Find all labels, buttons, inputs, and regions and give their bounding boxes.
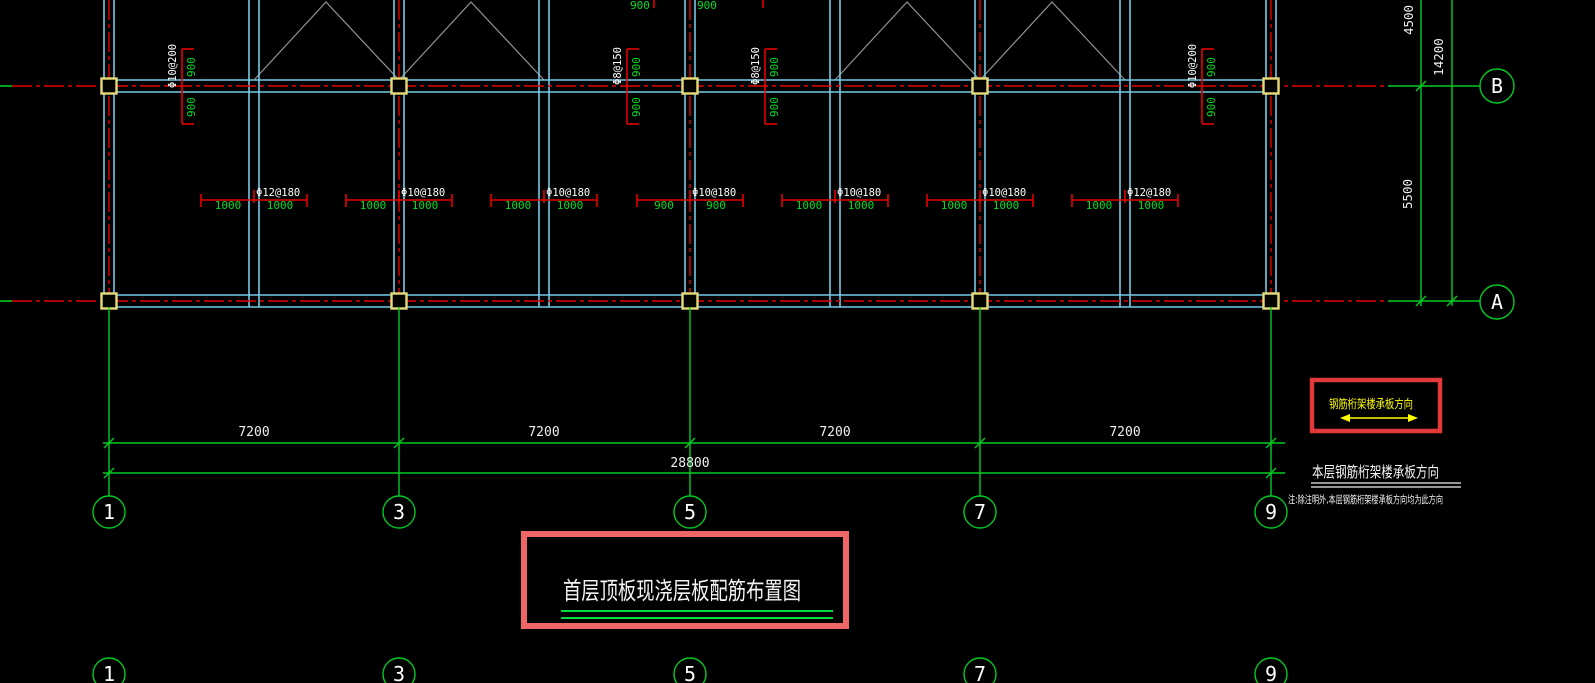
rebar-extent-right: 900 bbox=[697, 0, 717, 12]
grid-centerlines bbox=[0, 0, 1388, 312]
rebar-annotation-mid-3: Φ10@180 1000 1000 bbox=[491, 187, 597, 212]
rebar-annotation-mid-1: Φ12@180 1000 1000 bbox=[201, 187, 307, 212]
bay-dimension-label-4: 7200 bbox=[1109, 425, 1140, 440]
grid-bubbles-bottom: 1 3 5 7 9 bbox=[93, 496, 1287, 528]
total-dimension-label: 28800 bbox=[670, 456, 709, 471]
dimension-lines bbox=[103, 0, 1480, 496]
grid-bubble-partial-1: 1 bbox=[103, 662, 115, 683]
rebar-spacing-label: Φ12@180 bbox=[1127, 187, 1171, 199]
bay-dimension-label-1: 7200 bbox=[238, 425, 269, 440]
rebar-annotation-vertical-1: Φ10@200 900 900 bbox=[167, 44, 198, 124]
grid-bubble-5: 5 bbox=[684, 500, 696, 524]
rebar-extent-above: 900 bbox=[768, 57, 781, 77]
rebar-extent-below: 900 bbox=[630, 97, 643, 117]
drawing-title: 首层顶板现浇层板配筋布置图 bbox=[563, 577, 801, 605]
rebar-extent-left: 1000 bbox=[215, 199, 242, 212]
deck-direction-box-label: 钢筋桁架楼承板方向 bbox=[1329, 396, 1413, 411]
grid-bubble-partial-9: 9 bbox=[1265, 662, 1277, 683]
deck-direction-heading: 本层钢筋桁架楼承板方向 bbox=[1312, 463, 1439, 481]
grid-bubble-3: 3 bbox=[393, 500, 405, 524]
rebar-extent-right: 1000 bbox=[848, 199, 875, 212]
double-arrow-icon bbox=[1340, 414, 1418, 422]
rebar-extent-right: 1000 bbox=[993, 199, 1020, 212]
rebar-extent-left: 1000 bbox=[1086, 199, 1113, 212]
deck-direction-text: 本层钢筋桁架楼承板方向 注:除注明外,本层钢筋桁架楼承板方向均为此方向 bbox=[1288, 463, 1461, 506]
grid-bubble-B: B bbox=[1491, 74, 1503, 98]
rebar-spacing-label: Φ10@180 bbox=[692, 187, 736, 199]
rebar-extent-right: 1000 bbox=[1138, 199, 1165, 212]
bay-dimension-label-2: 7200 bbox=[528, 425, 559, 440]
grid-bubbles-right: B A bbox=[1480, 69, 1514, 319]
deck-direction-box: 钢筋桁架楼承板方向 bbox=[1312, 380, 1440, 431]
rebar-extent-right: 1000 bbox=[412, 199, 439, 212]
cad-structural-plan: 7200 7200 7200 7200 28800 4500 5500 1420… bbox=[0, 0, 1595, 683]
rebar-extent-above: 900 bbox=[630, 57, 643, 77]
grid-bubble-1: 1 bbox=[103, 500, 115, 524]
rebar-spacing-label: Φ8@150 bbox=[612, 47, 624, 85]
bay-dimension-label-3: 7200 bbox=[819, 425, 850, 440]
rebar-extent-right: 1000 bbox=[267, 199, 294, 212]
grid-bubbles-bottom-partial: 1 3 5 7 9 bbox=[93, 658, 1287, 683]
drawing-title-block: 首层顶板现浇层板配筋布置图 bbox=[524, 534, 846, 626]
rebar-spacing-label: Φ10@180 bbox=[837, 187, 881, 199]
rebar-extent-left: 1000 bbox=[796, 199, 823, 212]
rebar-extent-below: 900 bbox=[185, 97, 198, 117]
rebar-extent-below: 900 bbox=[768, 97, 781, 117]
rebar-annotation-vertical-4: Φ10@200 900 900 bbox=[1187, 44, 1218, 124]
rebar-spacing-label: Φ10@180 bbox=[401, 187, 445, 199]
rebar-annotation-mid-7: Φ12@180 1000 1000 bbox=[1072, 187, 1178, 212]
grid-bubble-partial-5: 5 bbox=[684, 662, 696, 683]
rebar-extent-above: 900 bbox=[1205, 57, 1218, 77]
rebar-spacing-label: Φ10@200 bbox=[167, 44, 179, 88]
rebar-extent-left: 900 bbox=[630, 0, 650, 12]
rebar-extent-left: 1000 bbox=[360, 199, 387, 212]
rebar-annotation-top-edge: 900 900 bbox=[630, 0, 763, 12]
rebar-annotation-vertical-3: Φ8@150 900 900 bbox=[750, 47, 781, 124]
rebar-extent-above: 900 bbox=[185, 57, 198, 77]
right-dim-top-partial: 4500 bbox=[1401, 5, 1416, 35]
rebar-annotation-mid-5: Φ10@180 1000 1000 bbox=[782, 187, 888, 212]
grid-bubble-9: 9 bbox=[1265, 500, 1277, 524]
rebar-extent-below: 900 bbox=[1205, 97, 1218, 117]
grid-bubble-partial-3: 3 bbox=[393, 662, 405, 683]
rebar-extent-left: 1000 bbox=[941, 199, 968, 212]
rebar-extent-left: 900 bbox=[654, 199, 674, 212]
rebar-spacing-label: Φ12@180 bbox=[256, 187, 300, 199]
rebar-spacing-label: Φ10@200 bbox=[1187, 44, 1199, 88]
rebar-extent-left: 1000 bbox=[505, 199, 532, 212]
rebar-spacing-label: Φ8@150 bbox=[750, 47, 762, 85]
right-dim-total: 14200 bbox=[1431, 38, 1446, 76]
deck-direction-note: 注:除注明外,本层钢筋桁架楼承板方向均为此方向 bbox=[1288, 493, 1443, 506]
rebar-spacing-label: Φ10@180 bbox=[982, 187, 1026, 199]
rebar-extent-right: 900 bbox=[706, 199, 726, 212]
grid-bubble-A: A bbox=[1491, 290, 1503, 314]
rebar-extent-right: 1000 bbox=[557, 199, 584, 212]
right-dim-span: 5500 bbox=[1400, 179, 1415, 209]
rebar-spacing-label: Φ10@180 bbox=[546, 187, 590, 199]
grid-bubble-partial-7: 7 bbox=[974, 662, 986, 683]
grid-bubble-7: 7 bbox=[974, 500, 986, 524]
